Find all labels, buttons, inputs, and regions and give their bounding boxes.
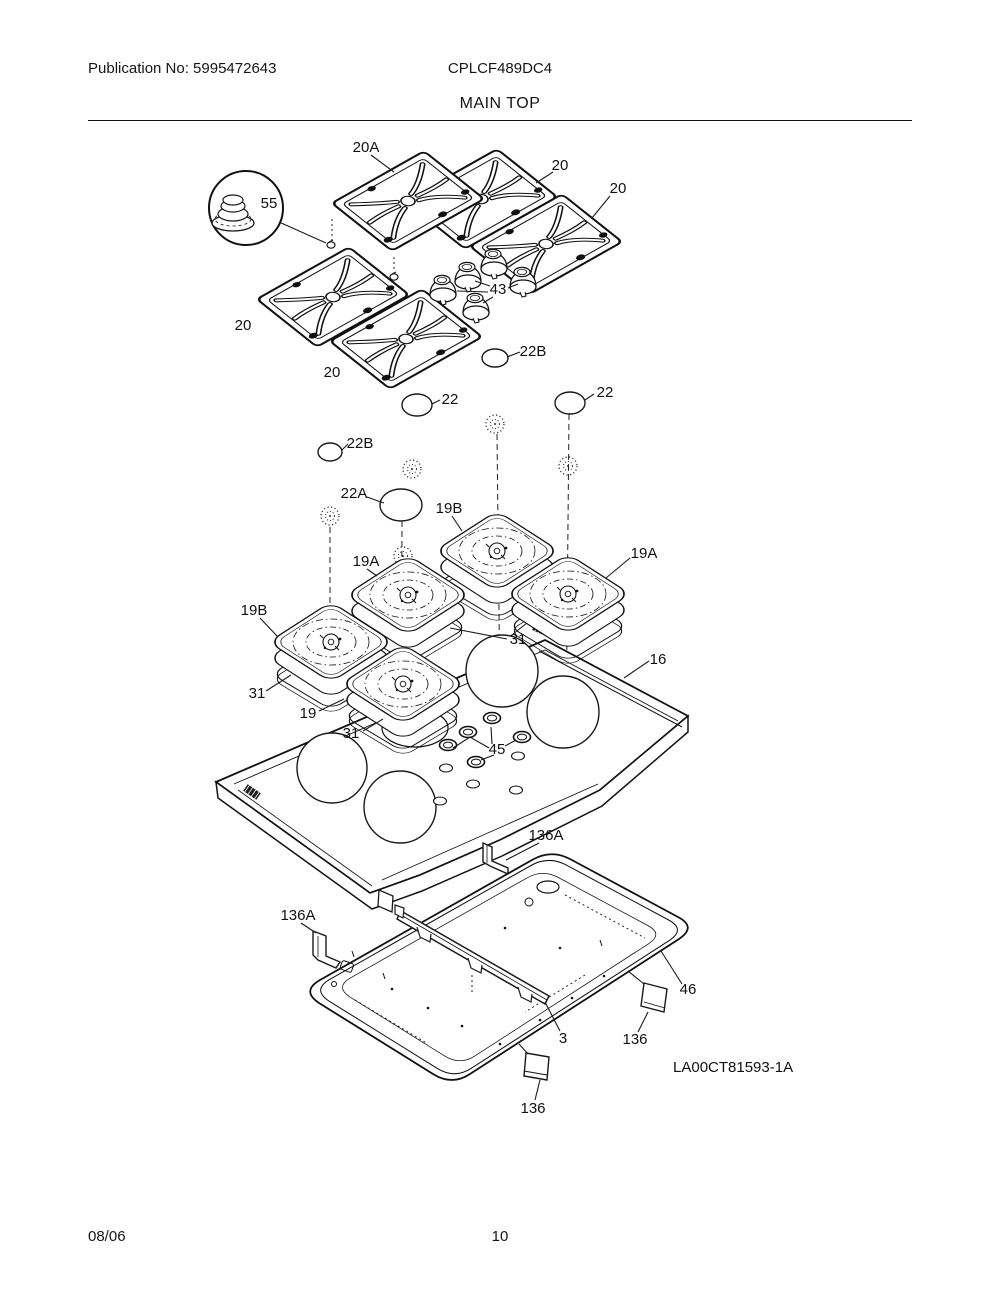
part-label-20: 20 (324, 364, 341, 381)
burner-opening (364, 771, 436, 843)
part-label-19a: 19A (631, 545, 658, 562)
part-label-16: 16 (650, 651, 667, 668)
part-label-22b: 22B (347, 435, 374, 452)
exploded-diagram: 20A 20 20 55 43 20 20 22B 22 22 22B 22A … (0, 0, 1000, 1294)
panel-hole (467, 780, 480, 788)
part-label-22: 22 (597, 384, 614, 401)
grommet-45 (514, 732, 531, 743)
part-label-31: 31 (249, 685, 266, 702)
part-label-136: 136 (520, 1100, 545, 1117)
cap-22 (402, 394, 432, 416)
part-label-136a: 136A (528, 827, 563, 844)
grommet-45 (468, 757, 485, 768)
bracket-136-bottom (524, 1053, 549, 1080)
burner-opening (466, 635, 538, 707)
part-label-19: 19 (300, 705, 317, 722)
panel-hole (434, 797, 447, 805)
burner-opening (297, 733, 367, 803)
cap-22b (482, 349, 508, 367)
igniter (559, 457, 577, 475)
panel-hole (510, 786, 523, 794)
part-label-45: 45 (489, 741, 506, 758)
knob (455, 262, 481, 292)
part-label-22: 22 (442, 391, 459, 408)
part-label-19b: 19B (436, 500, 463, 517)
panel-hole (440, 764, 453, 772)
grommet-45 (484, 713, 501, 724)
burner-opening (527, 676, 599, 748)
igniter (486, 415, 504, 433)
part-label-136: 136 (622, 1031, 647, 1048)
part-label-20: 20 (235, 317, 252, 334)
catalog-page: Publication No: 5995472643 CPLCF489DC4 M… (0, 0, 1000, 1294)
part-label-31: 31 (343, 725, 360, 742)
part-label-20: 20 (610, 180, 627, 197)
part-label-19b: 19B (241, 602, 268, 619)
knob (430, 275, 456, 305)
part-label-3: 3 (559, 1030, 567, 1047)
part-label-46: 46 (680, 981, 697, 998)
part-label-55: 55 (261, 195, 278, 212)
grommet-45 (440, 740, 457, 751)
part-label-43: 43 (490, 281, 507, 298)
part-label-19a: 19A (353, 553, 380, 570)
part-label-22b: 22B (520, 343, 547, 360)
igniter (403, 460, 421, 478)
cap-22b (318, 443, 342, 461)
part-label-20: 20 (552, 157, 569, 174)
burner-grates (257, 149, 622, 389)
cap-22 (555, 392, 585, 414)
part-label-20a: 20A (353, 139, 380, 156)
bracket-136a-left (313, 931, 340, 968)
igniter (321, 507, 339, 525)
cap-22a (380, 489, 422, 521)
grommet-45 (460, 727, 477, 738)
bracket-136-right (641, 983, 667, 1012)
panel-hole (512, 752, 525, 760)
diagram-code: LA00CT81593-1A (673, 1059, 793, 1076)
knob (463, 293, 489, 323)
part-label-22a: 22A (341, 485, 368, 502)
part-label-136a: 136A (280, 907, 315, 924)
part-label-31: 31 (510, 631, 527, 648)
